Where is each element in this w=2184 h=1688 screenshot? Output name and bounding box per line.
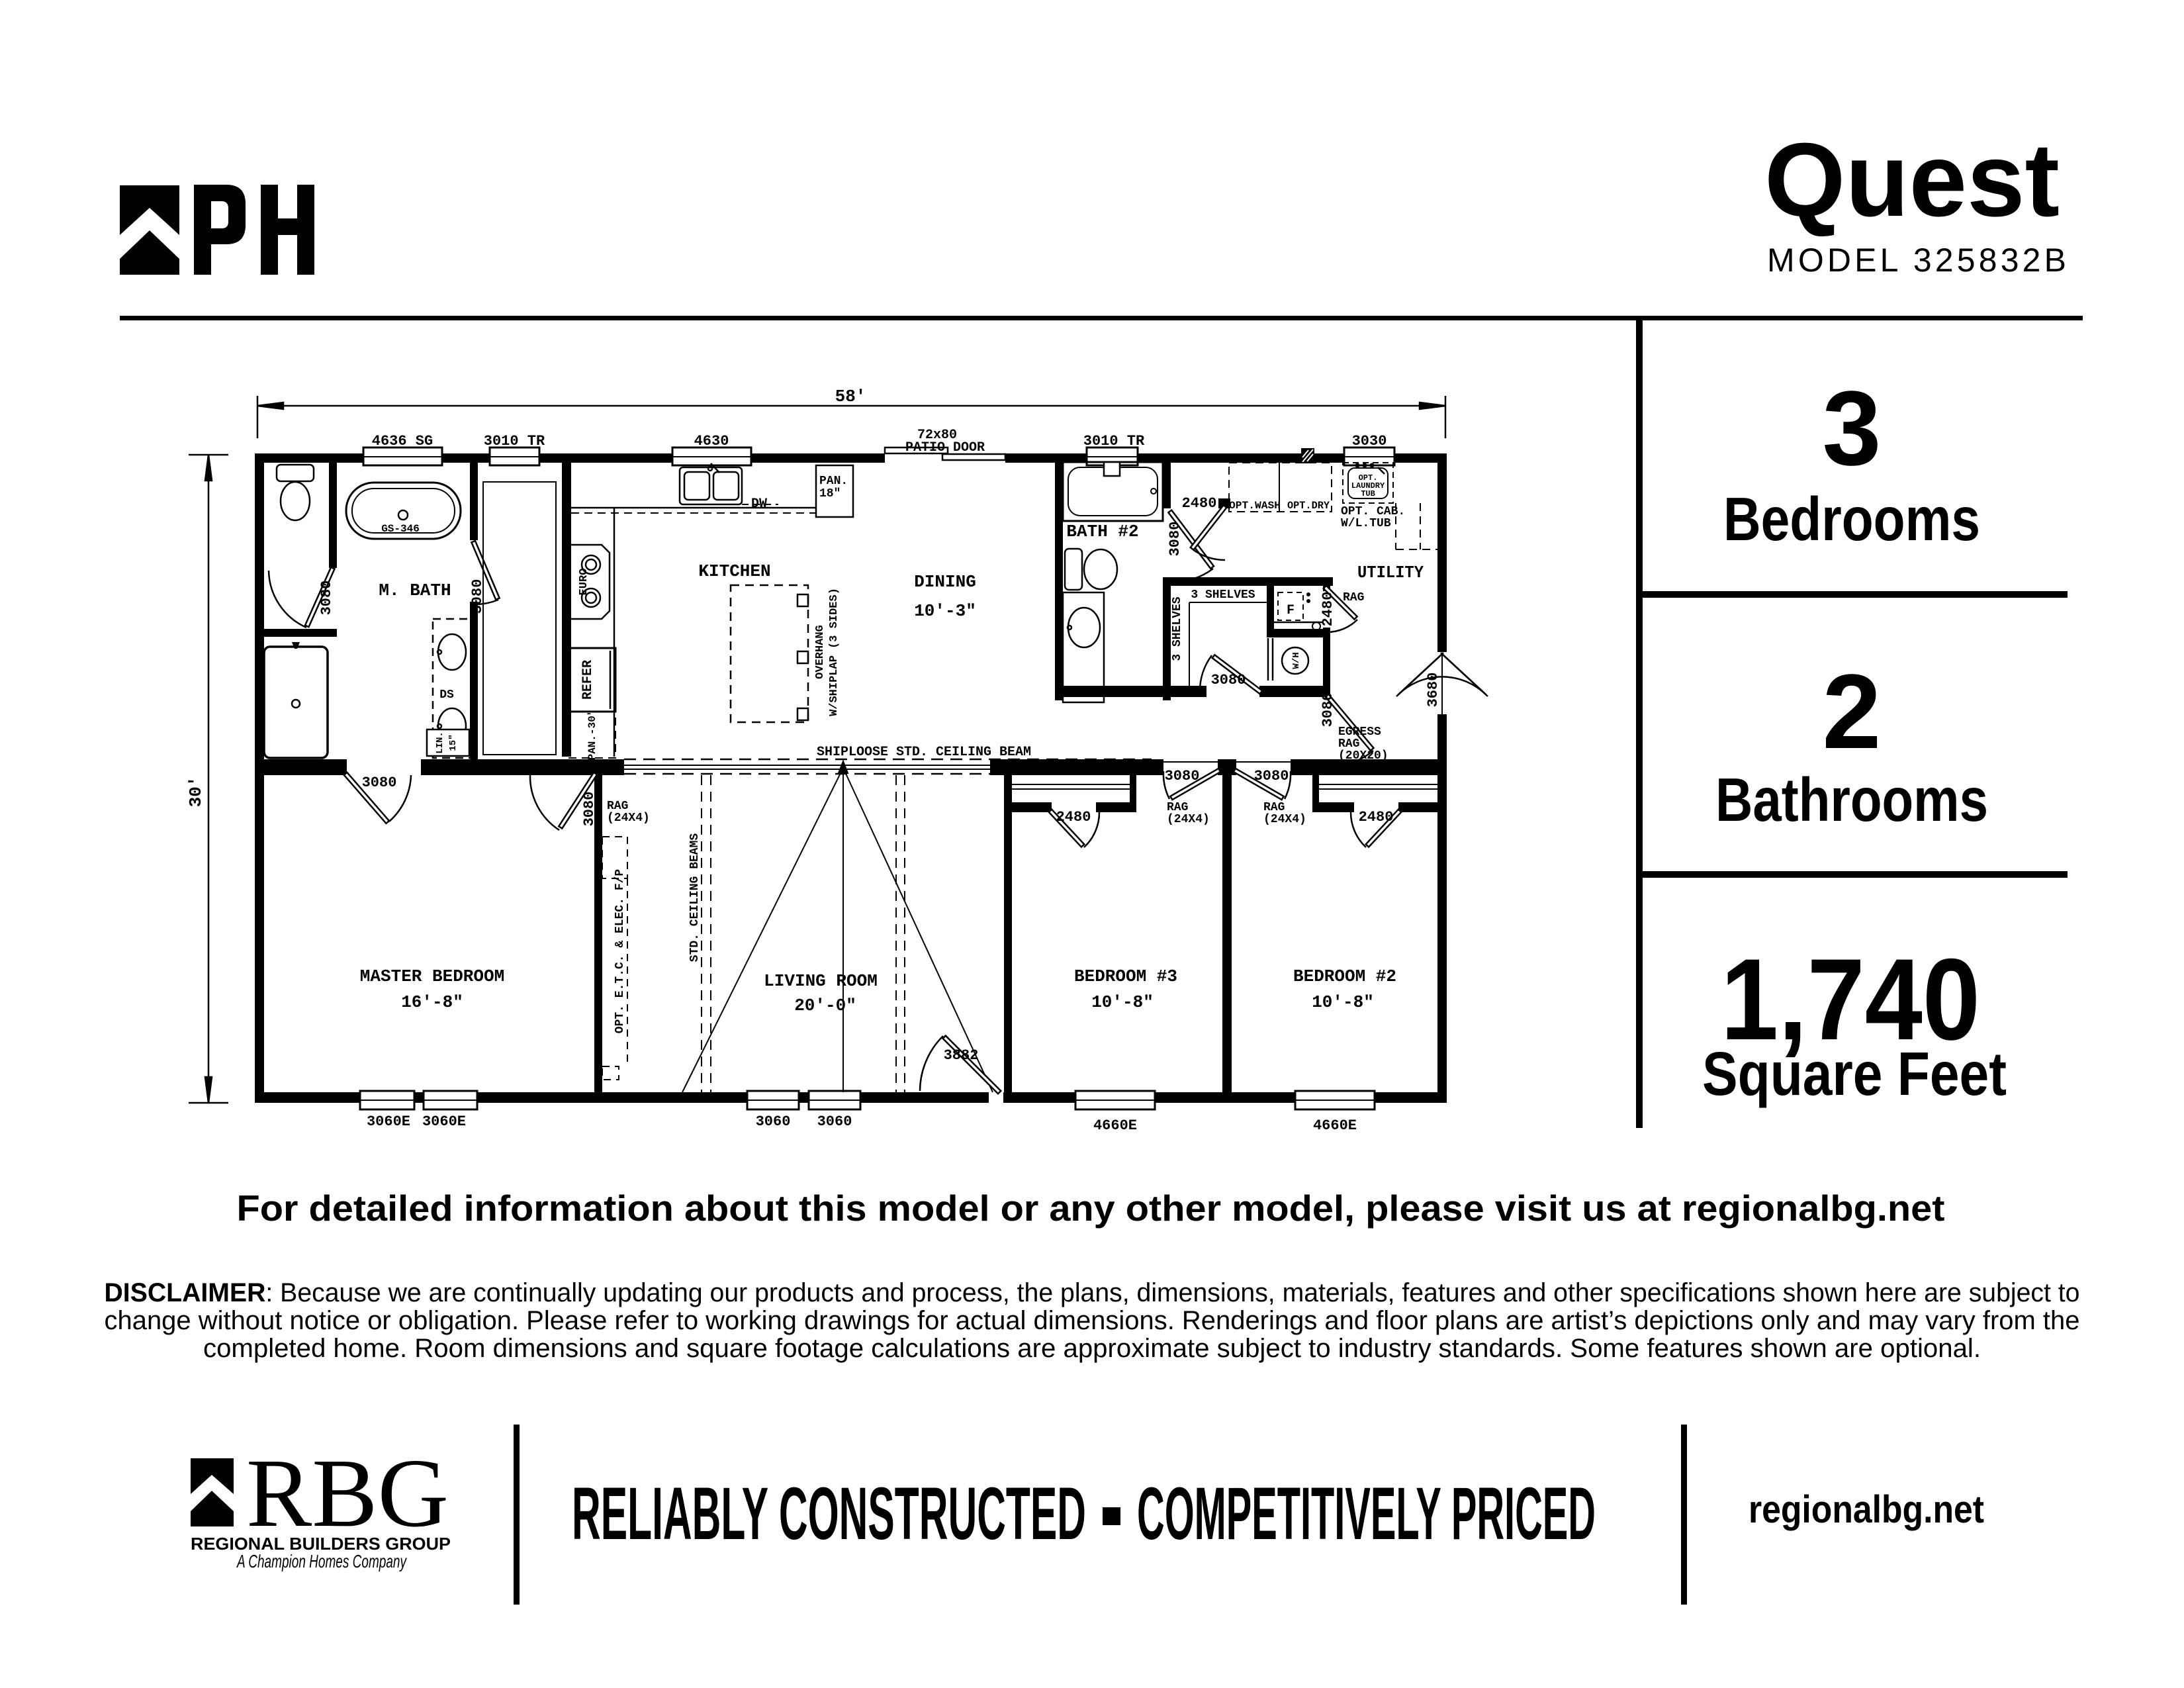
svg-text:W/H: W/H bbox=[1291, 652, 1302, 669]
svg-text:(24X4): (24X4) bbox=[607, 812, 650, 825]
svg-text:3080: 3080 bbox=[1254, 768, 1289, 784]
svg-text:MASTER BEDROOM: MASTER BEDROOM bbox=[360, 966, 504, 986]
svg-text:3882: 3882 bbox=[944, 1047, 979, 1064]
svg-text:SHIPLOOSE STD. CEILING BEAM: SHIPLOOSE STD. CEILING BEAM bbox=[817, 745, 1031, 760]
svg-text:RAG: RAG bbox=[1338, 737, 1359, 751]
svg-text:RAG: RAG bbox=[1263, 801, 1285, 814]
svg-text:LIVING ROOM: LIVING ROOM bbox=[764, 971, 878, 991]
svg-text:(24X4): (24X4) bbox=[1167, 813, 1210, 826]
svg-text:30': 30' bbox=[186, 776, 206, 808]
svg-text:For detailed information about: For detailed information about this mode… bbox=[237, 1188, 1945, 1229]
svg-text:RBG: RBG bbox=[246, 1439, 449, 1548]
svg-text:STD. CEILING BEAMS: STD. CEILING BEAMS bbox=[688, 833, 702, 962]
svg-text:3080: 3080 bbox=[1165, 768, 1200, 784]
svg-text:COMPETITIVELY PRICED: COMPETITIVELY PRICED bbox=[1137, 1472, 1596, 1555]
svg-text:3080: 3080 bbox=[362, 774, 397, 791]
svg-text:regionalbg.net: regionalbg.net bbox=[1749, 1488, 1984, 1531]
svg-text:KITCHEN: KITCHEN bbox=[698, 561, 770, 581]
svg-text:A Champion Homes Company: A Champion Homes Company bbox=[236, 1551, 408, 1571]
svg-text:OPT. E.T.C. & ELEC. F/P: OPT. E.T.C. & ELEC. F/P bbox=[614, 869, 627, 1034]
svg-text:GS-346: GS-346 bbox=[381, 523, 420, 535]
svg-text:PAN.: PAN. bbox=[819, 475, 848, 488]
svg-text:18": 18" bbox=[819, 487, 841, 500]
svg-text:RELIABLY CONSTRUCTED: RELIABLY CONSTRUCTED bbox=[572, 1472, 1086, 1555]
svg-text:Square Feet: Square Feet bbox=[1702, 1039, 2007, 1108]
svg-text:3 SHELVES: 3 SHELVES bbox=[1171, 596, 1184, 661]
svg-text:(24X4): (24X4) bbox=[1263, 813, 1306, 826]
svg-text:W/SHIPLAP (3 SIDES): W/SHIPLAP (3 SIDES) bbox=[828, 588, 841, 716]
svg-text:DS: DS bbox=[439, 688, 454, 702]
svg-text:OPT.WASH: OPT.WASH bbox=[1229, 500, 1281, 512]
svg-text:Bedrooms: Bedrooms bbox=[1723, 485, 1980, 553]
svg-text:3: 3 bbox=[1823, 369, 1882, 487]
svg-text:UTILITY: UTILITY bbox=[1357, 563, 1424, 583]
svg-text:3 SHELVES: 3 SHELVES bbox=[1191, 588, 1255, 602]
svg-text:3080: 3080 bbox=[1167, 522, 1183, 557]
svg-text:3010 TR: 3010 TR bbox=[1083, 433, 1145, 449]
svg-text:3010 TR: 3010 TR bbox=[484, 433, 545, 449]
svg-text:BEDROOM #2: BEDROOM #2 bbox=[1293, 966, 1396, 986]
svg-text:3080: 3080 bbox=[581, 792, 598, 827]
svg-text:W/L.TUB: W/L.TUB bbox=[1341, 517, 1391, 530]
svg-text:Bathrooms: Bathrooms bbox=[1715, 765, 1988, 834]
svg-text:F: F bbox=[1287, 603, 1295, 618]
svg-text:DINING: DINING bbox=[914, 572, 976, 592]
svg-text:completed home. Room dimension: completed home. Room dimensions and squa… bbox=[203, 1334, 1981, 1363]
svg-text:20'-0": 20'-0" bbox=[794, 996, 856, 1015]
svg-text:3080: 3080 bbox=[318, 581, 335, 616]
svg-text:LIN.: LIN. bbox=[435, 731, 445, 754]
svg-text:3080: 3080 bbox=[1211, 672, 1246, 688]
svg-text:2480: 2480 bbox=[1359, 809, 1394, 825]
svg-text:3060: 3060 bbox=[756, 1113, 791, 1130]
svg-text:3060E: 3060E bbox=[367, 1113, 410, 1130]
svg-text:RAG: RAG bbox=[607, 800, 628, 813]
svg-text:4660E: 4660E bbox=[1313, 1117, 1357, 1134]
svg-text:10'-3": 10'-3" bbox=[914, 601, 976, 621]
svg-text:BEDROOM #3: BEDROOM #3 bbox=[1074, 966, 1177, 986]
svg-text:10'-8": 10'-8" bbox=[1091, 992, 1154, 1012]
svg-text:RAG: RAG bbox=[1167, 801, 1188, 814]
svg-text:OPT.DRY: OPT.DRY bbox=[1287, 500, 1330, 512]
svg-text:(20X20): (20X20) bbox=[1338, 749, 1388, 763]
svg-text:RAG: RAG bbox=[1343, 591, 1364, 604]
svg-text:3680: 3680 bbox=[1425, 673, 1441, 708]
svg-text:EGRESS: EGRESS bbox=[1338, 726, 1381, 739]
svg-text:BATH #2: BATH #2 bbox=[1066, 522, 1138, 541]
svg-text:3030: 3030 bbox=[1352, 433, 1387, 449]
svg-text:10'-8": 10'-8" bbox=[1312, 992, 1374, 1012]
svg-text:4630: 4630 bbox=[694, 433, 729, 449]
svg-text:OVERHANG: OVERHANG bbox=[814, 625, 827, 679]
svg-text:15": 15" bbox=[448, 734, 459, 751]
svg-text:4660E: 4660E bbox=[1093, 1117, 1137, 1134]
svg-text:16'-8": 16'-8" bbox=[401, 992, 463, 1012]
svg-text:Quest: Quest bbox=[1764, 122, 2060, 238]
svg-text:4636 SG: 4636 SG bbox=[372, 433, 433, 449]
svg-text:3060E: 3060E bbox=[422, 1113, 466, 1130]
svg-text:3080: 3080 bbox=[1320, 692, 1336, 727]
svg-text:M. BATH: M. BATH bbox=[379, 581, 451, 600]
svg-text:2480: 2480 bbox=[1056, 809, 1091, 825]
svg-text:DISCLAIMER: Because we are con: DISCLAIMER: Because we are continually u… bbox=[105, 1278, 2080, 1307]
svg-text:3060: 3060 bbox=[817, 1113, 852, 1130]
svg-text:2480: 2480 bbox=[1182, 495, 1217, 512]
svg-text:PATIO DOOR: PATIO DOOR bbox=[905, 440, 985, 455]
svg-text:2: 2 bbox=[1823, 652, 1882, 771]
svg-text:PAN.-30": PAN.-30" bbox=[586, 710, 598, 761]
svg-text:change without notice or oblig: change without notice or obligation. Ple… bbox=[105, 1306, 2080, 1335]
svg-text:REFER: REFER bbox=[580, 660, 596, 700]
svg-text:2480: 2480 bbox=[1320, 592, 1336, 627]
svg-text:EURO: EURO bbox=[578, 569, 590, 596]
svg-text:TUB: TUB bbox=[1361, 489, 1375, 498]
svg-text:58': 58' bbox=[835, 387, 866, 406]
